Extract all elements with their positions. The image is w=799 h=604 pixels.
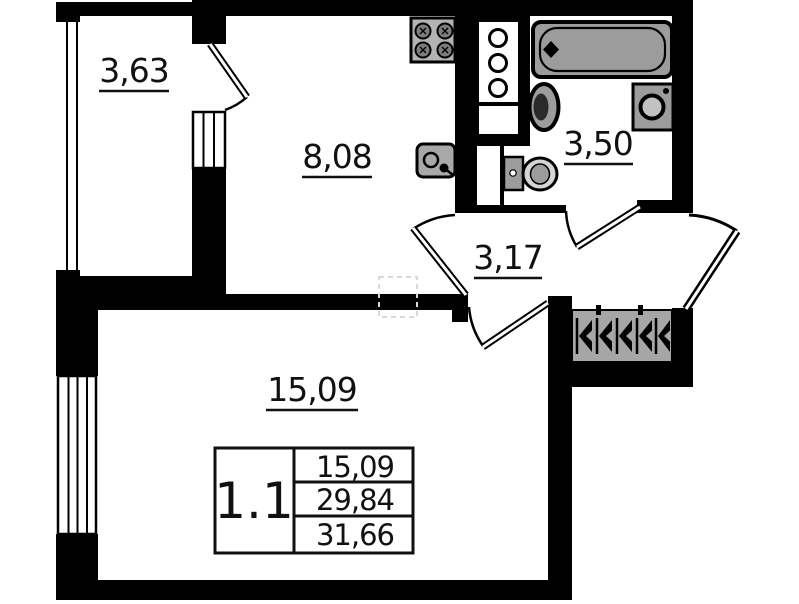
wall-bath-bottom-left [477, 205, 566, 213]
washing-machine [633, 84, 673, 130]
entrance-door [686, 215, 737, 309]
kitchen-area-label: 8,08 [302, 137, 371, 176]
wall-living-door-post [452, 294, 468, 322]
wardrobe-rail-hook [638, 305, 643, 315]
shaft-box-lower [479, 147, 500, 205]
wall-hall-column [548, 296, 572, 600]
washing-machine-knob [663, 88, 669, 94]
wall-bottom [56, 580, 572, 600]
wall-living-left-upper [56, 294, 98, 376]
legend-total-area: 29,84 [316, 483, 394, 517]
legend-living-area: 15,09 [316, 450, 394, 484]
living-room-door-arc [469, 307, 483, 346]
wall-top [192, 0, 693, 16]
bathroom-area-label: 3,50 [563, 124, 632, 163]
legend-overall-area: 31,66 [316, 518, 394, 552]
wall-divider-top [192, 0, 226, 44]
stove [411, 18, 455, 62]
kitchen-sink-drain [424, 153, 438, 167]
wardrobe-rail-hook [596, 305, 601, 315]
wardrobe [572, 305, 672, 362]
hallway-area-label: 3,17 [473, 238, 542, 277]
wall-wardrobe-bottom [548, 360, 693, 387]
kitchen-door-arc [413, 215, 455, 229]
shaft-box-middle [479, 106, 518, 134]
entrance-door-arc [689, 215, 737, 231]
wash-basin [528, 84, 559, 130]
entrance-door-leaf-core [686, 231, 737, 309]
living-room-area-label: 15,09 [267, 370, 356, 409]
legend-unit-number: 1.1 [214, 472, 294, 530]
balcony-door [210, 44, 247, 110]
bathroom-door-arc [566, 211, 577, 247]
living-room-door [469, 303, 548, 347]
washing-machine-door [641, 96, 664, 119]
balcony-kitchen-window [193, 112, 225, 168]
toilet-bowl-inner [531, 164, 550, 184]
balcony-door-arc [225, 97, 247, 110]
shaft-vent-circle [490, 55, 507, 72]
shaft-vent-circle [490, 80, 507, 97]
toilet [504, 157, 557, 190]
wall-bath-right [672, 0, 693, 213]
kitchen-door-leaf-core [413, 228, 466, 295]
floor-plan: 3,63 8,08 3,50 3,17 15,09 1.1 15,09 29,8… [0, 0, 799, 600]
living-room-door-leaf-core [483, 303, 548, 347]
kitchen-sink [417, 144, 455, 177]
toilet-button [510, 170, 516, 176]
balcony-door-leaf-core [210, 44, 247, 97]
bathtub [533, 22, 672, 77]
bathroom-door-leaf-core [577, 207, 640, 247]
kitchen-door [413, 215, 466, 295]
wall-living-top [96, 294, 466, 310]
legend-table: 1.1 15,09 29,84 31,66 [214, 448, 413, 553]
shaft-vent-circle [490, 30, 507, 47]
wall-kitchen-right [455, 16, 477, 213]
balcony-area-label: 3,63 [99, 51, 168, 90]
wall-divider-bottom [192, 168, 226, 310]
bathroom-door [566, 207, 640, 247]
wash-basin-inner [534, 94, 549, 121]
